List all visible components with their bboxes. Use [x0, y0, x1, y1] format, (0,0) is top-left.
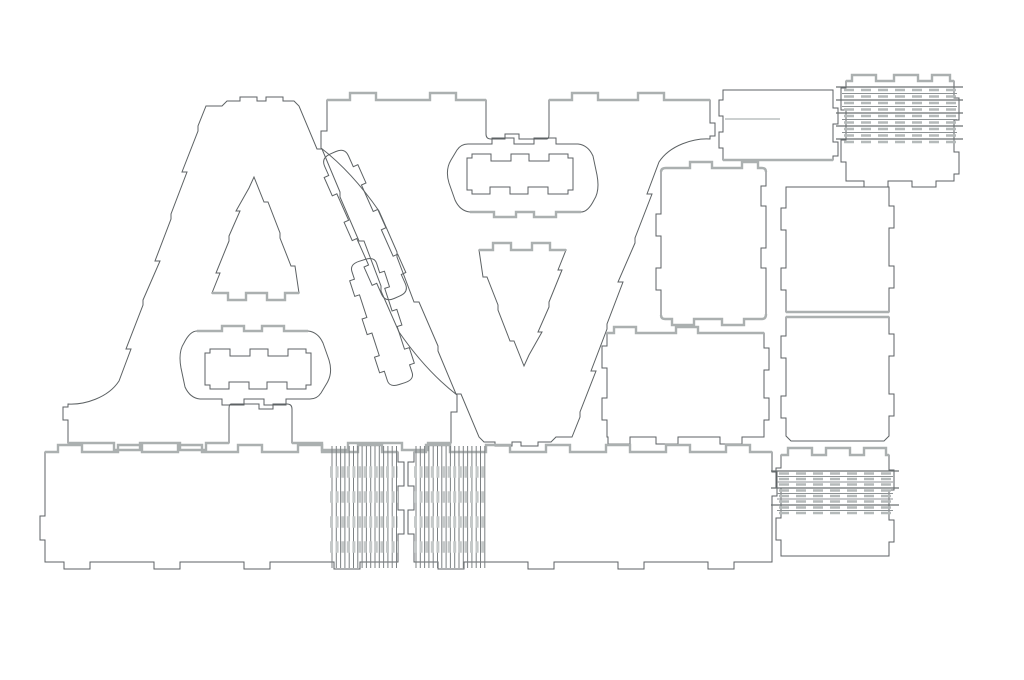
- letter-a-face-outline: [63, 97, 457, 450]
- panel-tall-top-accent: [661, 162, 766, 172]
- stadium-top-accent: [197, 326, 308, 331]
- crossbar-insert-piece: [467, 154, 573, 194]
- score-plate: [719, 90, 838, 160]
- stadium-top-accent: [470, 212, 581, 217]
- letter-a-upright-group: [63, 97, 457, 450]
- triangle-base-accent: [212, 293, 299, 300]
- laser-cut-sheet: [0, 0, 1024, 680]
- diagonal-wall-strip-2: [345, 255, 419, 389]
- crossbar-insert-piece: [205, 349, 311, 389]
- living-hinge-panel-top-right: [841, 75, 959, 187]
- hinge-panel-1-top-accent: [846, 75, 954, 81]
- hinge-panel-2-top-accent: [781, 448, 889, 455]
- right-foot-accent: [327, 93, 486, 100]
- triangle-base-accent: [479, 243, 566, 250]
- panel-wide-top-accent: [607, 327, 764, 333]
- side-panel-wide: [602, 327, 769, 444]
- hinge-1-dash-rows: [844, 90, 956, 142]
- laser-cut-drawing: [0, 0, 1024, 680]
- side-panel-lower-right: [781, 317, 894, 441]
- left-foot-accent: [68, 443, 229, 450]
- side-panel-upper-right: [781, 187, 894, 312]
- side-panel-rounded-tall: [656, 162, 766, 325]
- hinge-1-frame-lines: [836, 87, 963, 139]
- panel-tall-bottom-accent: [661, 314, 766, 325]
- left-foot-accent: [549, 93, 710, 100]
